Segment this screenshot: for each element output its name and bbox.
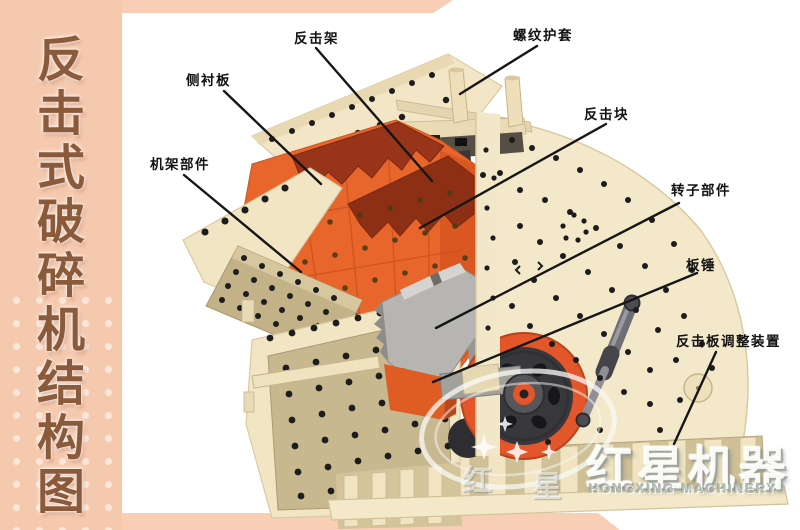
title-char: 破 <box>37 196 85 250</box>
watermark-faint-char: 星 <box>532 462 562 506</box>
label-frame-parts: 机架部件 <box>150 153 210 173</box>
title-char: 反 <box>37 34 85 88</box>
page: 红星机器 HONGXING MACHINERY 红 星 反击架 螺纹护套 侧衬板… <box>0 0 800 530</box>
title-char: 击 <box>37 88 85 142</box>
title-char: 式 <box>37 142 85 196</box>
label-blow-bar: 板锤 <box>686 254 716 274</box>
title-char: 机 <box>37 304 85 358</box>
label-rotor-parts: 转子部件 <box>671 179 731 199</box>
title-char: 碎 <box>37 250 85 304</box>
title-char: 构 <box>37 412 85 466</box>
sidebar: 反 击 式 破 碎 机 结 构 图 <box>0 0 122 530</box>
page-title: 反 击 式 破 碎 机 结 构 图 <box>0 34 122 520</box>
label-impact-frame: 反击架 <box>294 27 339 47</box>
label-impact-plate-adjuster: 反击板调整装置 <box>676 330 781 350</box>
title-char: 结 <box>37 358 85 412</box>
wall-strip <box>476 112 500 456</box>
title-char: 图 <box>37 466 85 520</box>
label-impact-block: 反击块 <box>584 103 629 123</box>
label-thread-sleeve: 螺纹护套 <box>513 24 573 44</box>
watermark-logo-en: HONGXING MACHINERY <box>589 481 778 496</box>
label-side-liner: 侧衬板 <box>186 69 231 89</box>
watermark-faint-char: 红 <box>462 456 492 500</box>
